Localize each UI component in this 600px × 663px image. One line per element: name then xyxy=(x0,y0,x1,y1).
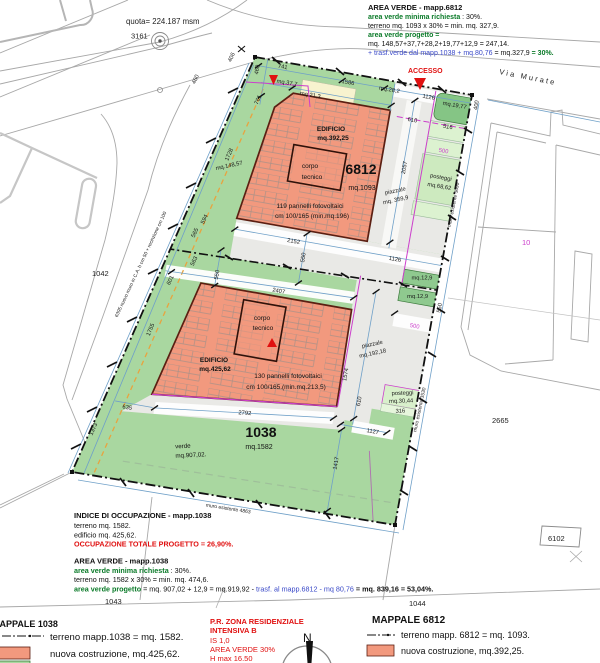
svg-text:terreno mq. 1093 x 30% = min.: terreno mq. 1093 x 30% = min. mq. 327,9. xyxy=(368,23,499,30)
svg-text:3161: 3161 xyxy=(131,32,148,41)
svg-text:terreno mapp.1038 = mq. 1582.: terreno mapp.1038 = mq. 1582. xyxy=(50,632,183,643)
svg-text:ACCESSO: ACCESSO xyxy=(408,68,443,75)
svg-text:edificio mq. 425,62.: edificio mq. 425,62. xyxy=(74,531,136,540)
svg-text:6102: 6102 xyxy=(548,534,565,543)
svg-text:AREA VERDE - mapp.1038: AREA VERDE - mapp.1038 xyxy=(74,557,168,566)
svg-text:terreno mapp. 6812 = mq. 1093.: terreno mapp. 6812 = mq. 1093. xyxy=(401,630,530,640)
svg-text:area verde minima richiesta :: area verde minima richiesta : 30%. xyxy=(368,14,482,21)
svg-text:INTENSIVA B: INTENSIVA B xyxy=(210,626,257,635)
svg-text:AREA VERDE - mapp.6812: AREA VERDE - mapp.6812 xyxy=(368,3,462,12)
svg-text:area verde progetto =: area verde progetto = xyxy=(368,32,439,39)
svg-text:1042: 1042 xyxy=(92,269,109,278)
svg-text:2665: 2665 xyxy=(492,416,509,425)
svg-text:nuova costruzione, mq.392,25.: nuova costruzione, mq.392,25. xyxy=(401,646,524,656)
svg-text:6812: 6812 xyxy=(345,161,376,177)
svg-text:corpo: corpo xyxy=(254,315,271,322)
svg-text:quota= 224.187 msm: quota= 224.187 msm xyxy=(126,17,199,26)
svg-text:mq.1093: mq.1093 xyxy=(348,185,375,192)
svg-text:mq.392,25: mq.392,25 xyxy=(317,135,349,142)
svg-text:EDIFICIO: EDIFICIO xyxy=(200,357,228,364)
svg-text:area verde progetto = mq. 907,: area verde progetto = mq. 907,02 + 12,9 … xyxy=(74,585,433,594)
svg-text:corpo: corpo xyxy=(302,163,319,170)
svg-text:tecnico: tecnico xyxy=(253,325,274,332)
svg-text:130 pannelli fotovoltaici: 130 pannelli fotovoltaici xyxy=(254,373,322,380)
svg-text:area verde minima richiesta :: area verde minima richiesta : 30%. xyxy=(74,566,191,575)
svg-text:posteggi: posteggi xyxy=(391,390,413,397)
svg-text:OCCUPAZIONE TOTALE PROGETTO =: OCCUPAZIONE TOTALE PROGETTO = 26,90%. xyxy=(74,540,233,549)
svg-text:MAPPALE 6812: MAPPALE 6812 xyxy=(372,615,446,626)
svg-text:terreno mq. 1582.: terreno mq. 1582. xyxy=(74,521,131,530)
svg-text:mq.425,62: mq.425,62 xyxy=(199,366,231,373)
svg-text:MAPPALE 1038: MAPPALE 1038 xyxy=(0,619,58,629)
svg-text:cm 100/165.(min.mq.213,5): cm 100/165.(min.mq.213,5) xyxy=(246,384,325,391)
svg-text:1043: 1043 xyxy=(105,597,122,606)
svg-text:mq.12,9: mq.12,9 xyxy=(407,294,428,300)
svg-text:mq. 148,57+37,7+28,2+19,77+12,: mq. 148,57+37,7+28,2+19,77+12,9 = 247,14… xyxy=(368,41,509,48)
svg-text:INDICE DI OCCUPAZIONE - mapp.1: INDICE DI OCCUPAZIONE - mapp.1038 xyxy=(74,511,211,520)
svg-text:P.R. ZONA RESIDENZIALE: P.R. ZONA RESIDENZIALE xyxy=(210,617,304,626)
svg-text:verde: verde xyxy=(175,443,191,451)
svg-text:mq.12,9: mq.12,9 xyxy=(411,275,432,281)
svg-text:1038: 1038 xyxy=(245,424,276,440)
svg-text:2792: 2792 xyxy=(238,410,251,417)
svg-text:316: 316 xyxy=(395,408,405,414)
svg-text:AREA VERDE 30%: AREA VERDE 30% xyxy=(210,645,275,654)
svg-text:nuova costruzione, mq.425,62.: nuova costruzione, mq.425,62. xyxy=(50,649,180,660)
svg-text:+ trasf.verde dal mapp.1038 +: + trasf.verde dal mapp.1038 + mq.80,76 =… xyxy=(368,50,554,57)
svg-text:tecnico: tecnico xyxy=(302,174,323,181)
svg-text:cm 100/165 (min.mq.196): cm 100/165 (min.mq.196) xyxy=(275,213,349,220)
svg-text:119 pannelli fotovoltaici: 119 pannelli fotovoltaici xyxy=(276,203,343,210)
svg-text:mq.30,44: mq.30,44 xyxy=(389,398,414,405)
svg-text:1044: 1044 xyxy=(409,599,426,608)
svg-text:terreno mq. 1582 x 30% = min.: terreno mq. 1582 x 30% = min. mq. 474,6. xyxy=(74,575,208,584)
svg-text:mq.1582: mq.1582 xyxy=(245,444,272,451)
svg-text:EDIFICIO: EDIFICIO xyxy=(317,126,345,133)
svg-text:IS 1,0: IS 1,0 xyxy=(210,636,230,645)
svg-text:10: 10 xyxy=(522,238,530,247)
svg-text:H max 16.50: H max 16.50 xyxy=(210,654,253,663)
